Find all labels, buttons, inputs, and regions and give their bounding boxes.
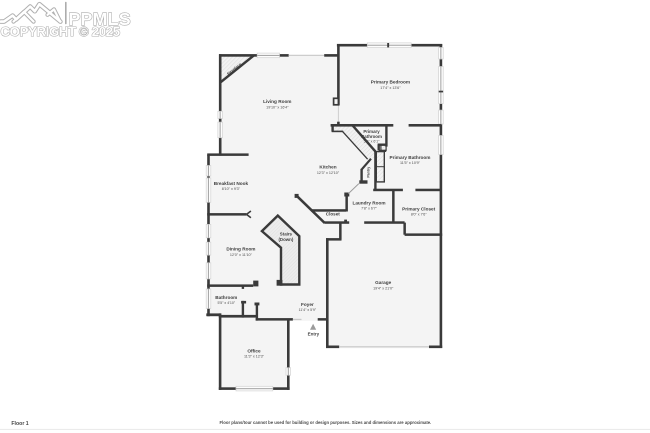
svg-text:Pantry: Pantry [367,167,371,178]
svg-text:5'5" x 4'10": 5'5" x 4'10" [217,301,235,305]
svg-text:Bathroom: Bathroom [215,295,237,300]
svg-text:Breakfast Nook: Breakfast Nook [214,181,249,186]
svg-text:Primary Bathroom: Primary Bathroom [390,155,431,160]
svg-text:8'10" x 9'3": 8'10" x 9'3" [222,187,241,191]
svg-text:12'3" x 12'10": 12'3" x 12'10" [317,171,340,175]
svg-text:5'5" x 6'1": 5'5" x 6'1" [364,140,380,144]
svg-text:COPYRIGHT © 2025: COPYRIGHT © 2025 [1,24,120,39]
svg-text:Office: Office [247,348,261,353]
svg-text:Dining Room: Dining Room [226,247,255,252]
svg-text:19'10" x 16'4": 19'10" x 16'4" [266,106,289,110]
svg-text:12'0" x 11'10": 12'0" x 11'10" [230,253,253,257]
svg-text:Bathroom: Bathroom [361,134,382,139]
svg-text:(Down): (Down) [278,237,293,242]
svg-text:Closet: Closet [326,212,341,217]
svg-text:Kitchen: Kitchen [319,165,336,170]
svg-text:Primary Closet: Primary Closet [402,207,436,212]
svg-text:11'3" x 12'3": 11'3" x 12'3" [244,355,265,359]
svg-text:Living Room: Living Room [263,99,291,104]
svg-text:7'8" x 6'7": 7'8" x 6'7" [361,207,377,211]
svg-text:Entry: Entry [308,331,320,336]
svg-text:Floor 1: Floor 1 [11,421,28,427]
svg-text:11'5" x 10'9": 11'5" x 10'9" [400,161,421,165]
svg-text:17'4" x 13'6": 17'4" x 13'6" [380,86,401,90]
svg-text:8'0" x 7'6": 8'0" x 7'6" [411,212,427,216]
svg-text:Primary Bedroom: Primary Bedroom [371,79,410,84]
svg-text:11'4" x 5'9": 11'4" x 5'9" [299,308,317,312]
svg-text:Foyer: Foyer [301,302,314,307]
svg-text:Garage: Garage [375,280,392,285]
svg-text:19'4" x 21'0": 19'4" x 21'0" [373,286,394,290]
svg-text:Laundry Room: Laundry Room [352,201,385,206]
svg-text:Floor plans/tour cannot be use: Floor plans/tour cannot be used for buil… [219,420,431,425]
